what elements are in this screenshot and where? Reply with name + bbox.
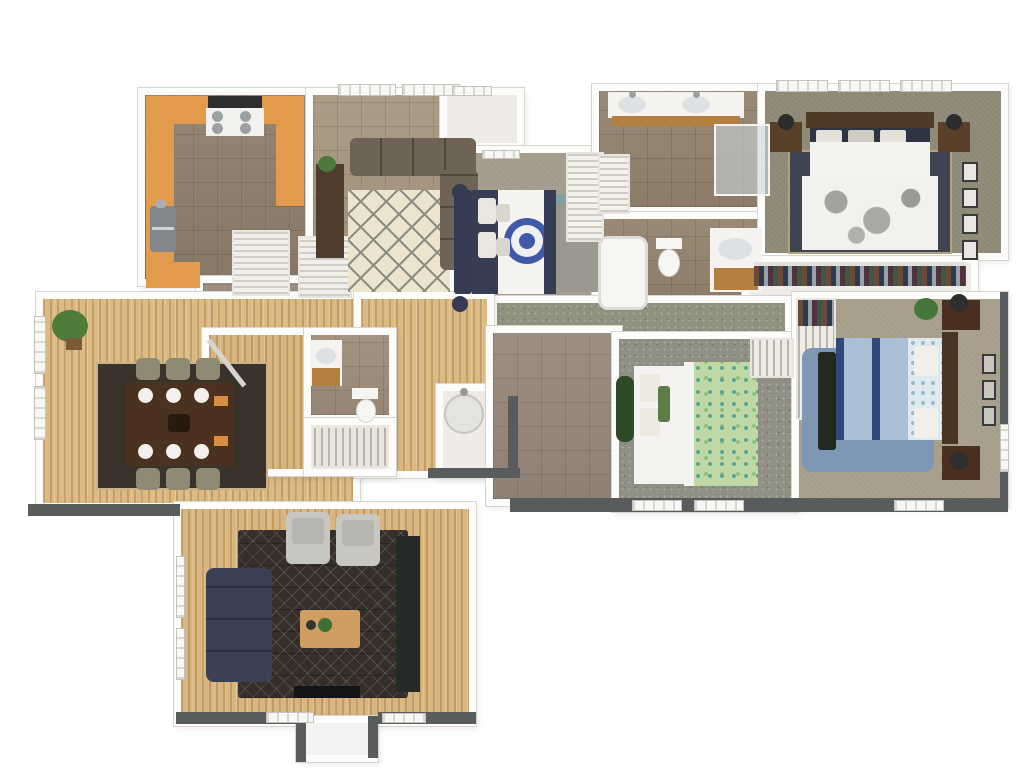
bedroom4-bench	[818, 352, 836, 450]
dining-chair-2	[166, 358, 190, 380]
bedroom3-plant	[616, 376, 634, 442]
bedroom4-duvet-trim-1	[836, 338, 844, 440]
bedroom4-picture-2	[982, 380, 996, 400]
bath2-toilet-bowl	[658, 249, 680, 277]
stove-burner-2	[240, 111, 251, 122]
bedroom2-pillow-2	[478, 232, 496, 258]
master-lamp-left	[778, 114, 794, 130]
bedroom4-headboard	[942, 332, 958, 444]
dining-chair-4	[136, 468, 160, 490]
master-lamp-right	[946, 114, 962, 130]
coffee-table-object	[306, 620, 316, 630]
stove-burner-4	[240, 123, 251, 134]
master-window-3	[900, 80, 952, 92]
dining-chair-5	[166, 468, 190, 490]
bedroom4-duvet-trim-2	[872, 338, 880, 440]
dining-window-1	[34, 316, 46, 374]
powder-vanity-base	[312, 368, 340, 386]
wall-cap-step-horizontal	[428, 468, 520, 478]
water-heater-valve	[460, 388, 468, 396]
bedroom3-pillow-2	[640, 408, 660, 436]
wall-cap-dining-south	[28, 504, 180, 516]
kitchen-sink-divider	[152, 227, 174, 230]
wall-cap-east	[1000, 292, 1008, 512]
bedroom3-sheet-fold	[684, 362, 694, 486]
master-mattress	[810, 142, 930, 180]
bath1-shower	[714, 124, 770, 196]
dining-plant-pot	[66, 338, 82, 350]
bedroom4-lamp-top	[950, 294, 968, 312]
living-window-bottom-2	[382, 713, 426, 723]
kitchen-faucet	[156, 200, 166, 208]
kitchen-counter-right	[276, 124, 304, 206]
master-closet-clothes	[754, 266, 966, 286]
bath1-linen-shelves	[598, 154, 630, 214]
dining-chair-3	[196, 358, 220, 380]
dining-plate-2	[166, 388, 181, 403]
bath2-vanity-base	[714, 268, 758, 290]
bedroom4-window-right	[1000, 424, 1009, 472]
bedroom2-bolster-1	[452, 184, 468, 200]
bath1-faucet-1	[629, 91, 636, 98]
living-media-console	[396, 536, 420, 692]
bedroom3-window-1	[632, 500, 682, 511]
dining-chair-6	[196, 468, 220, 490]
bath1-sink-2	[682, 96, 710, 113]
console-plant	[318, 156, 336, 172]
coffee-table-plant	[318, 618, 332, 632]
dining-plate-4	[138, 444, 153, 459]
family-console	[316, 164, 344, 258]
bedroom4-closet-clothes	[798, 300, 834, 326]
bedroom2-headboard	[454, 190, 472, 294]
master-window-1	[776, 80, 828, 92]
bedroom4-pillow-2	[914, 408, 938, 438]
bedroom4-lamp-bottom	[950, 452, 968, 470]
bath1-sink-1	[618, 96, 646, 113]
dining-plate-3	[194, 388, 209, 403]
closet-small-shelves	[312, 426, 388, 468]
bedroom4-picture-3	[982, 406, 996, 426]
master-picture-1	[962, 162, 978, 182]
bedroom3-pillow-1	[640, 374, 660, 402]
dining-mat-1	[214, 396, 228, 406]
bath1-faucet-2	[693, 91, 700, 98]
water-heater-tank	[444, 394, 484, 434]
dining-chair-1	[136, 358, 160, 380]
powder-sink	[316, 348, 336, 364]
bedroom2-pillow-1	[478, 198, 496, 224]
floor-plan	[0, 0, 1024, 778]
wall-cap-step-vertical	[508, 396, 518, 478]
stove-burner-3	[212, 123, 223, 134]
room-entry	[486, 326, 622, 506]
pantry-closet-1	[232, 230, 290, 296]
dining-window-2	[34, 386, 46, 440]
living-sofa	[206, 568, 272, 682]
family-rug	[348, 190, 450, 292]
living-armchair-1-cushion	[292, 518, 324, 544]
bedroom4-pillow-1	[914, 346, 938, 376]
wall-cap-porch-right	[368, 716, 378, 758]
powder-toilet-bowl	[356, 399, 376, 423]
alcove-window	[452, 86, 492, 96]
bedroom3-cushion	[658, 386, 670, 422]
bath2-toilet-tank	[656, 238, 682, 249]
bedroom4-window-bottom	[894, 500, 944, 511]
bedroom2-medallion-inner	[519, 233, 535, 249]
family-window-1	[338, 84, 396, 96]
stove-burner-1	[212, 111, 223, 122]
master-picture-2	[962, 188, 978, 208]
dining-plate-6	[194, 444, 209, 459]
master-window-2	[838, 80, 890, 92]
living-window-left-2	[176, 628, 185, 680]
bedroom2-pillow-4	[496, 238, 510, 256]
living-window-left-1	[176, 556, 185, 618]
bedroom3-window-2	[694, 500, 744, 511]
bedroom2-pillow-3	[496, 204, 510, 222]
kitchen-counter-bottom	[146, 262, 200, 288]
bath2-sink	[718, 238, 752, 260]
dining-plate-1	[138, 388, 153, 403]
bedroom2-throw-foot	[544, 190, 556, 294]
living-tv	[294, 686, 360, 698]
bedroom3-closet-shelves	[750, 338, 794, 378]
powder-toilet-tank	[352, 388, 378, 399]
master-picture-4	[962, 240, 978, 260]
stove-backsplash	[208, 96, 262, 108]
bedroom3-duvet	[692, 362, 758, 486]
master-duvet	[802, 176, 938, 250]
bath2-tub	[598, 236, 648, 310]
master-picture-3	[962, 214, 978, 234]
living-window-bottom-1	[266, 712, 314, 723]
dining-centerpiece	[168, 414, 190, 432]
master-headboard	[806, 112, 934, 128]
living-armchair-2-cushion	[342, 520, 374, 546]
bedroom4-plant	[914, 298, 938, 320]
bedroom2-window	[482, 150, 520, 159]
bedroom2-bolster-2	[452, 296, 468, 312]
bedroom4-picture-1	[982, 354, 996, 374]
dining-plate-5	[166, 444, 181, 459]
dining-mat-2	[214, 436, 228, 446]
